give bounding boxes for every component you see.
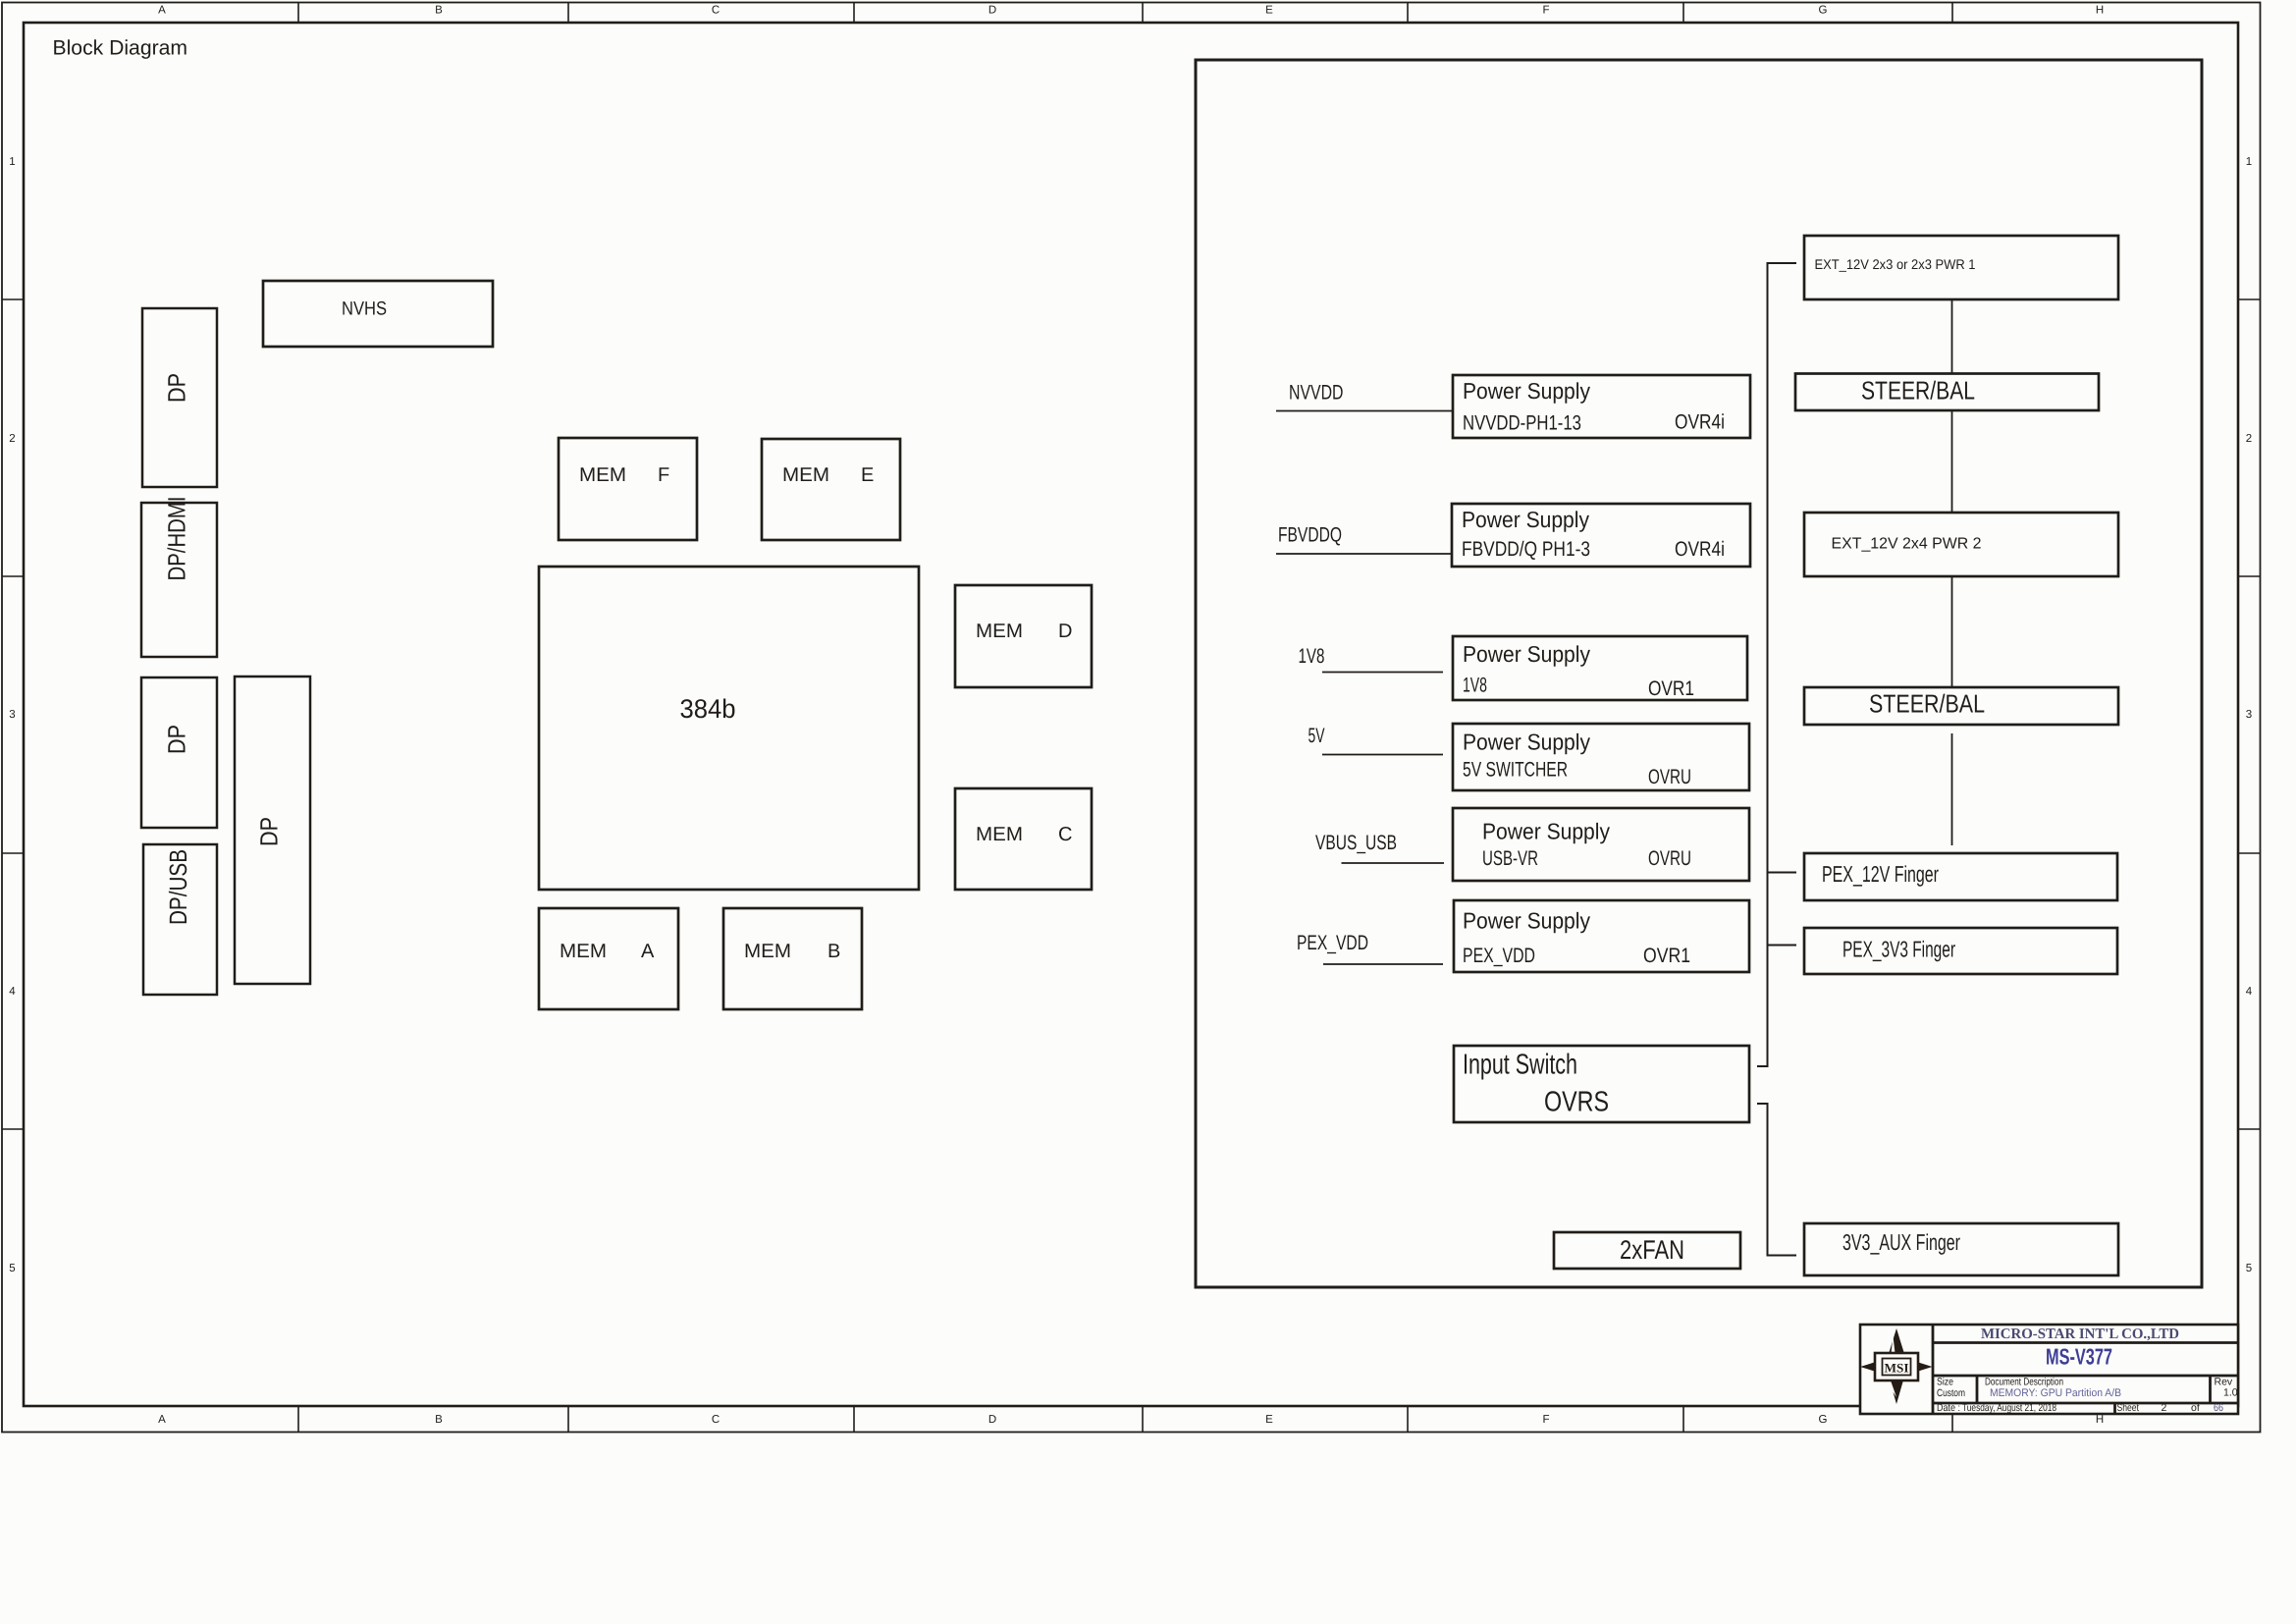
svg-text:MEMORY: GPU Partition A/B: MEMORY: GPU Partition A/B <box>1990 1387 2121 1399</box>
svg-text:NVVDD: NVVDD <box>1289 382 1344 405</box>
svg-text:OVR4i: OVR4i <box>1675 538 1725 561</box>
svg-text:4: 4 <box>2246 986 2253 998</box>
svg-text:NVVDD-PH1-13: NVVDD-PH1-13 <box>1463 412 1581 435</box>
svg-text:1: 1 <box>2246 156 2252 168</box>
svg-text:5V: 5V <box>1308 725 1325 747</box>
svg-text:DP/USB: DP/USB <box>165 849 192 925</box>
svg-text:E: E <box>1265 1414 1273 1426</box>
svg-text:NVHS: NVHS <box>342 298 387 320</box>
svg-text:Custom: Custom <box>1937 1387 1965 1399</box>
svg-text:MS-V377: MS-V377 <box>2046 1344 2112 1370</box>
svg-text:MEM: MEM <box>976 824 1023 845</box>
svg-text:Power Supply: Power Supply <box>1463 641 1590 667</box>
svg-text:F: F <box>658 464 669 486</box>
svg-text:Power Supply: Power Supply <box>1482 819 1610 844</box>
svg-text:1V8: 1V8 <box>1463 675 1487 697</box>
svg-text:2: 2 <box>2162 1402 2167 1414</box>
svg-text:Input Switch: Input Switch <box>1463 1050 1577 1081</box>
svg-text:Size: Size <box>1937 1377 1953 1388</box>
svg-text:USB-VR: USB-VR <box>1482 847 1538 870</box>
svg-text:DP: DP <box>164 373 191 403</box>
svg-text:STEER/BAL: STEER/BAL <box>1861 376 1975 406</box>
svg-text:OVRU: OVRU <box>1648 847 1691 870</box>
svg-text:FBVDDQ: FBVDDQ <box>1278 524 1342 547</box>
svg-text:FBVDD/Q PH1-3: FBVDD/Q PH1-3 <box>1462 538 1590 561</box>
svg-text:MEM: MEM <box>579 464 626 486</box>
svg-text:384b: 384b <box>680 694 736 724</box>
svg-text:of: of <box>2191 1402 2200 1414</box>
svg-text:OVR4i: OVR4i <box>1675 411 1725 434</box>
svg-text:DP: DP <box>256 817 284 846</box>
svg-text:B: B <box>828 941 840 962</box>
svg-text:EXT_12V 2x4 PWR 2: EXT_12V 2x4 PWR 2 <box>1832 536 1982 553</box>
svg-text:Tuesday, August 21, 2018: Tuesday, August 21, 2018 <box>1962 1402 2056 1414</box>
svg-text:5: 5 <box>2246 1263 2252 1274</box>
svg-text:EXT_12V 2x3 or 2x3 PWR 1: EXT_12V 2x3 or 2x3 PWR 1 <box>1815 256 1976 272</box>
svg-text:F: F <box>1542 1414 1549 1426</box>
svg-text:E: E <box>861 464 874 486</box>
svg-text:Power Supply: Power Supply <box>1463 908 1590 934</box>
svg-text:Block Diagram: Block Diagram <box>53 37 188 60</box>
svg-text:E: E <box>1265 5 1273 17</box>
svg-text:Document Description: Document Description <box>1985 1377 2063 1388</box>
svg-text:PEX_VDD: PEX_VDD <box>1463 945 1535 967</box>
svg-text:PEX_VDD: PEX_VDD <box>1297 932 1368 954</box>
svg-text:3: 3 <box>9 709 15 721</box>
svg-text:1.0: 1.0 <box>2223 1387 2238 1399</box>
svg-text:2: 2 <box>2246 433 2252 445</box>
svg-text:1V8: 1V8 <box>1299 645 1325 668</box>
svg-text:Power Supply: Power Supply <box>1462 507 1589 532</box>
svg-text:C: C <box>1058 824 1072 845</box>
svg-text:2xFAN: 2xFAN <box>1620 1235 1684 1265</box>
svg-text:STEER/BAL: STEER/BAL <box>1869 689 1985 719</box>
svg-text:MICRO-STAR INT'L CO.,LTD: MICRO-STAR INT'L CO.,LTD <box>1981 1326 2179 1342</box>
svg-text:3V3_AUX Finger: 3V3_AUX Finger <box>1842 1229 1960 1255</box>
svg-text:B: B <box>435 5 443 17</box>
svg-text:DP/HDMI: DP/HDMI <box>164 497 191 581</box>
svg-text:MEM: MEM <box>560 941 607 962</box>
svg-text:MEM: MEM <box>744 941 791 962</box>
svg-text:Sheet: Sheet <box>2117 1402 2140 1414</box>
svg-text:H: H <box>2096 1414 2104 1426</box>
svg-text:PEX_3V3 Finger: PEX_3V3 Finger <box>1842 937 1955 962</box>
svg-text:5: 5 <box>9 1263 15 1274</box>
svg-text:A: A <box>158 1414 166 1426</box>
svg-text:D: D <box>1058 621 1072 642</box>
svg-text:C: C <box>712 5 720 17</box>
svg-text:A: A <box>158 5 166 17</box>
svg-text:B: B <box>435 1414 443 1426</box>
svg-text:1: 1 <box>9 156 15 168</box>
svg-text:OVR1: OVR1 <box>1643 945 1690 967</box>
svg-text:G: G <box>1819 1414 1828 1426</box>
svg-text:OVR1: OVR1 <box>1648 677 1694 700</box>
svg-text:G: G <box>1819 5 1828 17</box>
svg-text:D: D <box>988 5 996 17</box>
svg-text:Date :: Date : <box>1937 1402 1960 1414</box>
svg-text:A: A <box>641 941 655 962</box>
svg-text:4: 4 <box>9 986 16 998</box>
svg-text:C: C <box>712 1414 720 1426</box>
svg-text:MSI: MSI <box>1885 1361 1909 1376</box>
svg-text:PEX_12V Finger: PEX_12V Finger <box>1822 861 1939 887</box>
svg-text:MEM: MEM <box>976 621 1023 642</box>
svg-text:3: 3 <box>2246 709 2252 721</box>
svg-text:VBUS_USB: VBUS_USB <box>1315 832 1397 854</box>
svg-text:D: D <box>988 1414 996 1426</box>
svg-text:OVRU: OVRU <box>1648 766 1691 788</box>
svg-text:H: H <box>2096 5 2104 17</box>
svg-text:Power Supply: Power Supply <box>1463 730 1590 755</box>
svg-text:F: F <box>1542 5 1549 17</box>
svg-text:OVRS: OVRS <box>1544 1087 1609 1118</box>
svg-text:DP: DP <box>164 725 191 754</box>
svg-text:2: 2 <box>9 433 15 445</box>
svg-text:66: 66 <box>2214 1402 2223 1414</box>
svg-text:Power Supply: Power Supply <box>1463 378 1590 404</box>
svg-text:5V SWITCHER: 5V SWITCHER <box>1463 759 1568 782</box>
svg-text:MEM: MEM <box>782 464 829 486</box>
